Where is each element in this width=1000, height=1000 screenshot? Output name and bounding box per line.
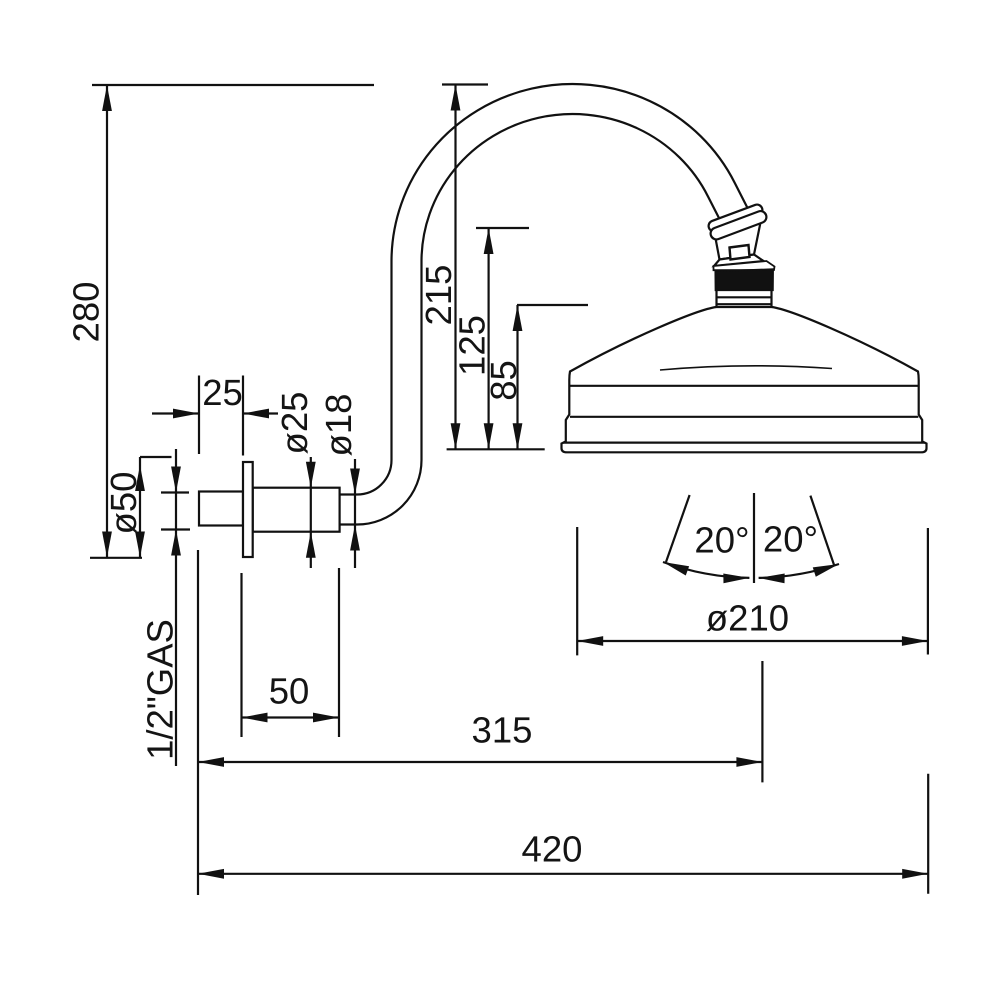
svg-text:25: 25 <box>202 372 243 413</box>
svg-text:20°: 20° <box>763 519 818 560</box>
svg-text:280: 280 <box>66 282 107 343</box>
svg-text:ø50: ø50 <box>103 472 144 535</box>
svg-text:50: 50 <box>269 671 310 712</box>
svg-text:20°: 20° <box>694 520 749 561</box>
svg-text:1/2"GAS: 1/2"GAS <box>140 619 181 760</box>
svg-text:ø210: ø210 <box>706 598 789 639</box>
svg-text:85: 85 <box>483 360 524 401</box>
svg-text:420: 420 <box>522 829 583 870</box>
svg-text:ø25: ø25 <box>274 392 315 455</box>
svg-text:ø18: ø18 <box>318 394 359 457</box>
svg-text:315: 315 <box>472 710 533 751</box>
